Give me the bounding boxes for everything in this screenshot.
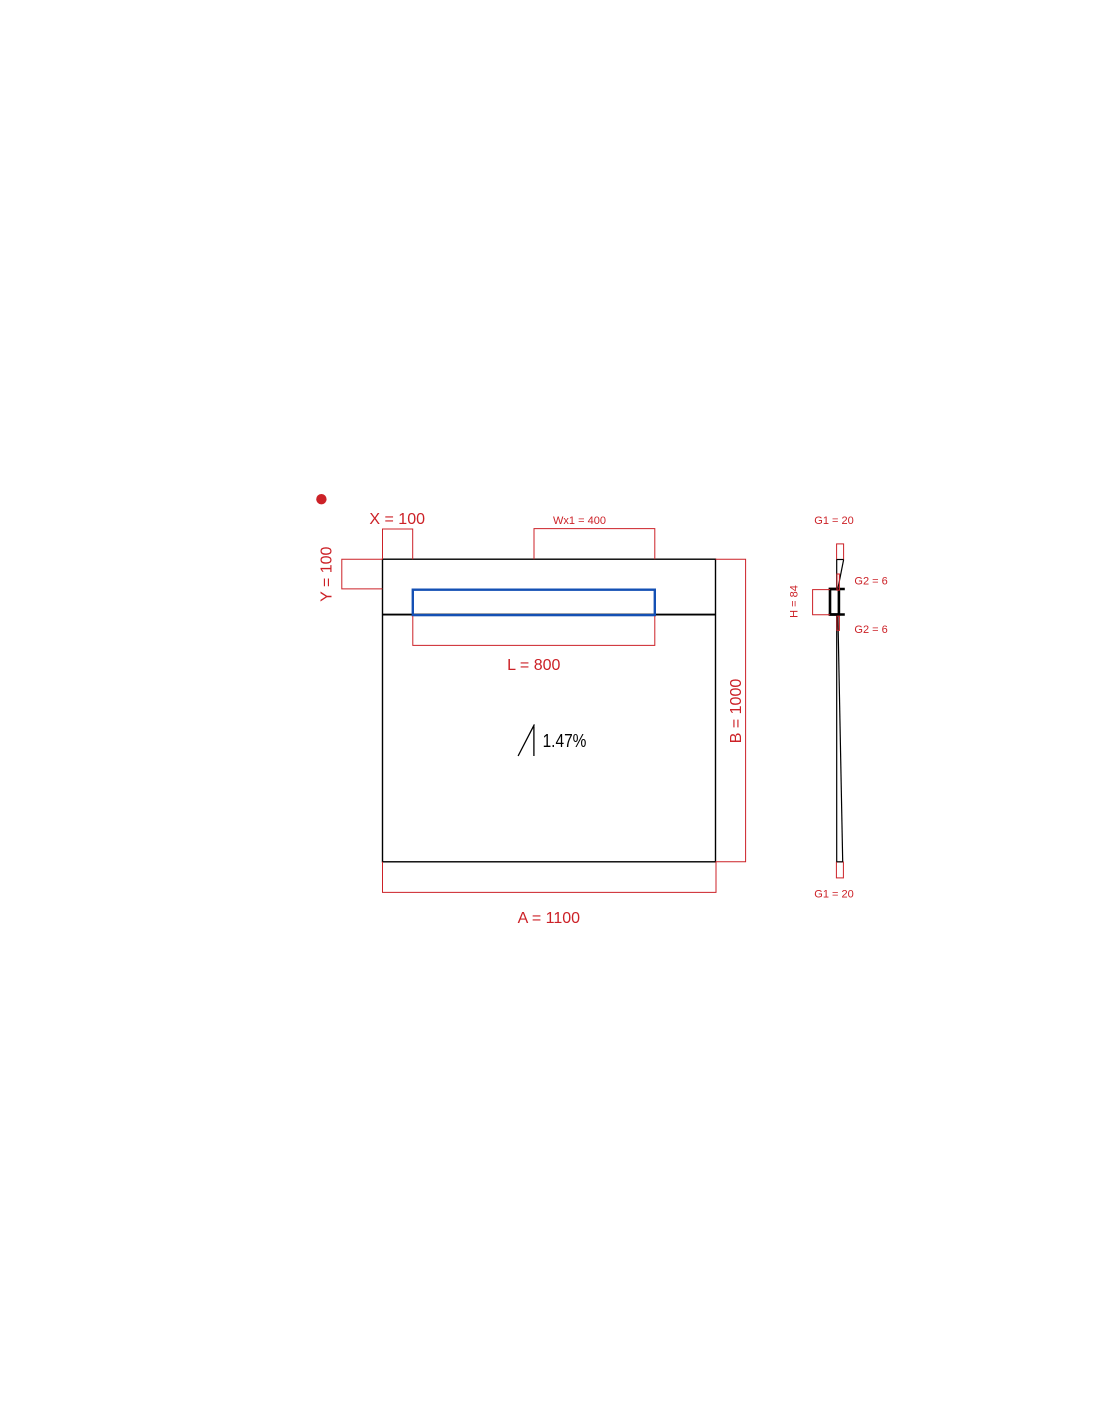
svg-text:H = 84: H = 84 bbox=[789, 585, 801, 618]
svg-text:B = 1000: B = 1000 bbox=[728, 679, 745, 744]
svg-text:G1 = 20: G1 = 20 bbox=[814, 889, 853, 901]
svg-text:G2 = 6: G2 = 6 bbox=[854, 624, 887, 636]
svg-text:A = 1100: A = 1100 bbox=[518, 910, 581, 927]
svg-text:1.47%: 1.47% bbox=[543, 731, 587, 751]
svg-text:L = 800: L = 800 bbox=[507, 657, 560, 674]
svg-text:G1 = 20: G1 = 20 bbox=[814, 515, 853, 527]
svg-text:G2 = 6: G2 = 6 bbox=[854, 575, 887, 587]
svg-text:Y = 100: Y = 100 bbox=[319, 546, 336, 601]
svg-text:X = 100: X = 100 bbox=[369, 511, 425, 528]
svg-text:Wx1 = 400: Wx1 = 400 bbox=[553, 515, 606, 527]
